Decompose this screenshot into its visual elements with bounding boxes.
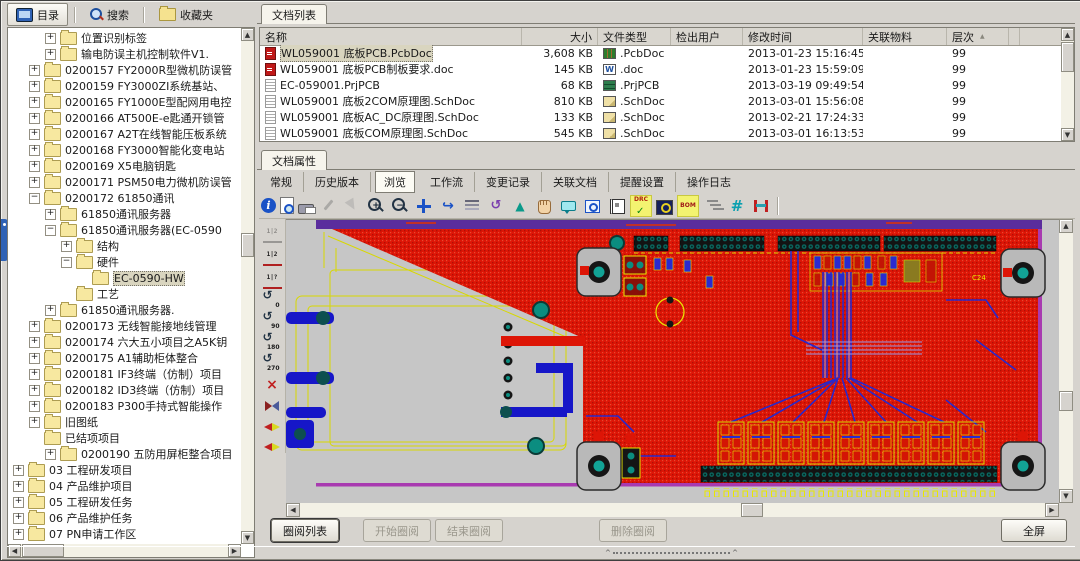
collapse-icon[interactable]: − bbox=[45, 225, 56, 236]
pointer-icon[interactable] bbox=[342, 196, 362, 216]
scroll-down-icon[interactable]: ▼ bbox=[241, 531, 254, 544]
toolbar-button-favorites[interactable]: 收藏夹 bbox=[151, 4, 221, 25]
expand-icon[interactable]: + bbox=[29, 337, 40, 348]
doc-type: .SchDoc bbox=[620, 127, 665, 140]
document-table: 名称大小文件类型检出用户修改时间关联物料层次▲ WL059001 底板PCB.P… bbox=[259, 27, 1075, 142]
tree-item-label: 0200175 A1辅助柜体整合 bbox=[65, 350, 198, 366]
tree-item[interactable]: +06 产品维护任务 bbox=[9, 510, 240, 526]
viewer-vscroll-thumb[interactable] bbox=[1059, 391, 1073, 411]
schdoc-file-icon bbox=[603, 96, 616, 107]
splitter-handle[interactable]: ^ ^ bbox=[605, 549, 738, 556]
expand-icon[interactable]: + bbox=[45, 49, 56, 60]
doc-type: .doc bbox=[620, 63, 643, 76]
sort-ascending-icon: ▲ bbox=[980, 33, 985, 40]
tree-item[interactable]: +0200173 无线智能接地线管理 bbox=[9, 318, 240, 334]
tree-item[interactable]: +0200175 A1辅助柜体整合 bbox=[9, 350, 240, 366]
tree-item-label: 0200159 FY3000ZI系统基站、 bbox=[65, 78, 224, 94]
tree-item[interactable]: +0200159 FY3000ZI系统基站、 bbox=[9, 78, 240, 94]
splitter-dots bbox=[613, 552, 730, 554]
tree-item[interactable]: −硬件 bbox=[9, 254, 240, 270]
folder-icon bbox=[28, 480, 45, 493]
doc-type: .SchDoc bbox=[620, 111, 665, 124]
tree-item[interactable]: +0200181 IF3终端（仿制）项目 bbox=[9, 366, 240, 382]
tree-item-label: 03 工程研发项目 bbox=[49, 462, 133, 478]
doc-level-cell: 99 bbox=[947, 127, 1009, 140]
tree-item-label: 0200181 IF3终端（仿制）项目 bbox=[65, 366, 222, 382]
expand-icon[interactable]: + bbox=[29, 97, 40, 108]
tree-item-label: 61850通讯服务器(EC-0590 bbox=[81, 222, 222, 238]
tree-item-label: 07 PN申请工作区 bbox=[49, 526, 136, 542]
folder-icon bbox=[28, 496, 45, 509]
prjpcb-file-icon bbox=[603, 80, 616, 91]
board-top-edge bbox=[316, 220, 1042, 229]
toolbar-button-label: 搜索 bbox=[107, 7, 129, 23]
expand-icon[interactable]: + bbox=[29, 321, 40, 332]
expand-icon[interactable]: + bbox=[29, 177, 40, 188]
redline-icon[interactable] bbox=[486, 196, 506, 216]
folder-icon bbox=[28, 528, 45, 541]
doc-size-cell: 810 KB bbox=[522, 95, 598, 108]
subtab-工作流[interactable]: 工作流 bbox=[419, 172, 475, 192]
column-header-filler bbox=[1009, 28, 1020, 45]
doc-size-cell: 145 KB bbox=[522, 63, 598, 76]
tree-item-label: 工艺 bbox=[97, 286, 119, 302]
properties-subtabs: 常规历史版本浏览工作流变更记录关联文档提醒设置操作日志 bbox=[259, 171, 1075, 192]
expand-icon[interactable]: + bbox=[13, 497, 24, 508]
schdoc-file-icon bbox=[603, 128, 616, 139]
collapse-icon[interactable]: − bbox=[61, 257, 72, 268]
doc-type-cell: .SchDoc bbox=[598, 95, 671, 108]
mirror-h-icon[interactable] bbox=[263, 396, 282, 415]
print-preview-icon[interactable] bbox=[280, 197, 294, 214]
folder-icon bbox=[44, 64, 61, 77]
column-header-6[interactable]: 关联物料 bbox=[863, 28, 947, 45]
tree-item-label: 0200183 P300手持式智能操作 bbox=[65, 398, 222, 414]
expand-icon[interactable]: + bbox=[29, 113, 40, 124]
tree-item-label: 旧图纸 bbox=[65, 414, 98, 430]
expand-icon[interactable]: + bbox=[29, 65, 40, 76]
tree-vertical-scrollbar[interactable]: ▲ ▼ bbox=[241, 28, 254, 544]
tab-document-list-label: 文档列表 bbox=[272, 7, 316, 23]
bom-icon[interactable]: BOM bbox=[677, 195, 699, 217]
directory-icon bbox=[16, 8, 33, 22]
tree-item-label: 06 产品维护任务 bbox=[49, 510, 133, 526]
folder-icon bbox=[44, 128, 61, 141]
notebook-icon[interactable] bbox=[606, 196, 626, 216]
doc-lines-icon bbox=[265, 127, 276, 140]
tree-item-label: 04 产品维护项目 bbox=[49, 478, 133, 494]
folder-icon bbox=[44, 112, 61, 125]
viewer-toolbar: i+−DRCBOM# bbox=[259, 193, 1075, 219]
doc-type: .PcbDoc bbox=[620, 47, 664, 60]
red-doc-icon bbox=[265, 63, 276, 76]
expand-icon[interactable]: + bbox=[29, 369, 40, 380]
doc-size-cell: 133 KB bbox=[522, 111, 598, 124]
folder-icon bbox=[60, 448, 77, 461]
viewer-horizontal-scrollbar[interactable]: ◀ ▶ bbox=[286, 503, 1059, 517]
tree-item-label: 硬件 bbox=[97, 254, 119, 270]
doc-level-cell: 99 bbox=[947, 111, 1009, 124]
pan-icon[interactable] bbox=[414, 196, 434, 216]
drc-icon[interactable]: DRC bbox=[630, 195, 652, 217]
subtab-常规[interactable]: 常规 bbox=[259, 172, 304, 192]
tree-item[interactable]: 已结项项目 bbox=[9, 430, 240, 446]
tree-item-label: 05 工程研发任务 bbox=[49, 494, 133, 510]
doc-size-cell: 3,608 KB bbox=[522, 47, 598, 60]
component-label-c24: C24 bbox=[972, 274, 986, 282]
hand-icon[interactable] bbox=[534, 196, 554, 216]
mirror-left-icon[interactable] bbox=[263, 417, 282, 436]
tree-item-label: 输电防误主机控制软件V1. bbox=[81, 46, 209, 62]
expand-icon[interactable]: + bbox=[29, 417, 40, 428]
doc-lines-icon bbox=[265, 79, 276, 92]
doc-modified-cell: 2013-01-23 15:16:45 bbox=[743, 47, 863, 60]
subtab-关联文档[interactable]: 关联文档 bbox=[542, 172, 609, 192]
project-tree-panel: +位置识别标签+输电防误主机控制软件V1.+0200157 FY2000R型微机… bbox=[7, 27, 255, 558]
pcb-viewer-canvas[interactable]: C24 bbox=[286, 219, 1059, 504]
folder-icon bbox=[60, 48, 77, 61]
folder-icon bbox=[28, 464, 45, 477]
doc-name: WL059001 底板2COM原理图.SchDoc bbox=[280, 93, 475, 109]
doc-type-cell: .PcbDoc bbox=[598, 47, 671, 60]
doc-modified-cell: 2013-02-21 17:24:33 bbox=[743, 111, 863, 124]
measure-icon[interactable] bbox=[751, 196, 771, 216]
table-vscroll-thumb[interactable] bbox=[1061, 42, 1074, 72]
expand-icon[interactable]: + bbox=[13, 465, 24, 476]
toolbar-button-directory[interactable]: 目录 bbox=[7, 3, 68, 26]
doc-name: WL059001 底板PCB.PcbDoc bbox=[280, 45, 433, 62]
board-view-icon[interactable] bbox=[656, 200, 673, 215]
zoom-in-icon[interactable]: + bbox=[366, 196, 386, 216]
rotate-270-icon[interactable]: 270 bbox=[263, 354, 282, 373]
tree-item[interactable]: EC-0590-HW bbox=[9, 270, 240, 286]
expand-icon[interactable]: + bbox=[13, 529, 24, 540]
folder-icon bbox=[44, 384, 61, 397]
tree-item[interactable]: +0200171 PSM50电力微机防误管 bbox=[9, 174, 240, 190]
tree-item-label: EC-0590-HW bbox=[113, 271, 185, 286]
doc-level-cell: 99 bbox=[947, 47, 1009, 60]
zoom-out-icon[interactable]: − bbox=[390, 196, 410, 216]
tree-item[interactable]: +输电防误主机控制软件V1. bbox=[9, 46, 240, 62]
tree-item[interactable]: 工艺 bbox=[9, 286, 240, 302]
tree-item-label: 0200169 X5电脑钥匙 bbox=[65, 158, 176, 174]
expand-icon[interactable]: + bbox=[13, 481, 24, 492]
doc-name-cell: WL059001 底板COM原理图.SchDoc bbox=[260, 125, 522, 141]
doc-type: .SchDoc bbox=[620, 95, 665, 108]
expand-icon[interactable]: + bbox=[45, 209, 56, 220]
doc-lines-icon bbox=[265, 95, 276, 108]
tree-item[interactable]: +03 工程研发项目 bbox=[9, 462, 240, 478]
expand-icon[interactable]: + bbox=[29, 401, 40, 412]
folder-icon bbox=[76, 256, 93, 269]
toolbar-button-label: 收藏夹 bbox=[180, 7, 213, 23]
table-row[interactable]: EC-059001.PrjPCB68 KB.PrjPCB2013-03-19 0… bbox=[260, 77, 1061, 93]
table-row[interactable]: WL059001 底板PCB制板要求.doc145 KBW.doc2013-01… bbox=[260, 61, 1061, 77]
doc-modified-cell: 2013-03-19 09:49:54 bbox=[743, 79, 863, 92]
scroll-down-icon[interactable]: ▼ bbox=[1059, 489, 1073, 503]
doc-type-cell: .PrjPCB bbox=[598, 79, 671, 92]
tree-item[interactable]: +位置识别标签 bbox=[9, 30, 240, 46]
bottom-pin-header bbox=[701, 466, 997, 482]
search-icon bbox=[90, 8, 103, 21]
tree-item[interactable]: +旧图纸 bbox=[9, 414, 240, 430]
expand-icon[interactable]: + bbox=[45, 33, 56, 44]
rotate-180-icon[interactable]: 180 bbox=[263, 333, 282, 352]
doc-type-cell: W.doc bbox=[598, 63, 671, 76]
top-pin-headers bbox=[634, 236, 996, 253]
doc-type-cell: .SchDoc bbox=[598, 127, 671, 140]
doc-level-cell: 99 bbox=[947, 79, 1009, 92]
tree-item-label: 0200167 A2T在线智能压板系统 bbox=[65, 126, 227, 142]
application-window: 目录搜索收藏夹 +位置识别标签+输电防误主机控制软件V1.+0200157 FY… bbox=[0, 0, 1080, 561]
tree-item[interactable]: +61850通讯服务器 bbox=[9, 206, 240, 222]
table-row[interactable]: WL059001 底板COM原理图.SchDoc545 KB.SchDoc201… bbox=[260, 125, 1061, 141]
tree-item[interactable]: +0200182 ID3终端（仿制）项目 bbox=[9, 382, 240, 398]
doc-size-cell: 545 KB bbox=[522, 127, 598, 140]
document-table-header[interactable]: 名称大小文件类型检出用户修改时间关联物料层次▲ bbox=[260, 28, 1061, 46]
tree-item[interactable]: −0200172 61850通讯 bbox=[9, 190, 240, 206]
folder-icon bbox=[60, 208, 77, 221]
doc-level-cell: 99 bbox=[947, 63, 1009, 76]
rotate-90-icon[interactable]: 90 bbox=[263, 312, 282, 331]
compare-none-icon[interactable]: 1|2 bbox=[263, 222, 282, 243]
review-list-button[interactable]: 圈阅列表 bbox=[271, 519, 339, 542]
doc-name-cell: WL059001 底板2COM原理图.SchDoc bbox=[260, 93, 522, 109]
scroll-up-icon[interactable]: ▲ bbox=[1059, 219, 1073, 233]
scroll-up-icon[interactable]: ▲ bbox=[1061, 28, 1074, 41]
viewer-vertical-scrollbar[interactable]: ▲ ▼ bbox=[1059, 219, 1073, 503]
folder-icon bbox=[44, 320, 61, 333]
subtab-提醒设置[interactable]: 提醒设置 bbox=[609, 172, 676, 192]
doc-lines-icon bbox=[265, 111, 276, 124]
collapse-up-icon: ^ bbox=[732, 549, 738, 557]
tree-item[interactable]: +0200169 X5电脑钥匙 bbox=[9, 158, 240, 174]
folder-icon bbox=[44, 336, 61, 349]
scroll-right-icon[interactable]: ▶ bbox=[1045, 503, 1059, 517]
arrow-up-icon[interactable] bbox=[510, 196, 530, 216]
doc-name: WL059001 底板COM原理图.SchDoc bbox=[280, 125, 468, 141]
tree-item-label: 0200166 AT500E-e匙通开锁管 bbox=[65, 110, 225, 126]
doc-level-cell: 99 bbox=[947, 95, 1009, 108]
tree-item-label: 已结项项目 bbox=[65, 430, 120, 446]
subtab-浏览[interactable]: 浏览 bbox=[375, 171, 415, 193]
expand-icon[interactable]: + bbox=[29, 145, 40, 156]
folder-icon bbox=[44, 80, 61, 93]
expand-icon[interactable]: + bbox=[61, 241, 72, 252]
doc-type: .PrjPCB bbox=[620, 79, 659, 92]
tree-vscroll-thumb[interactable] bbox=[241, 233, 254, 257]
column-header-7[interactable]: 层次▲ bbox=[947, 28, 1009, 45]
doc-modified-cell: 2013-01-23 15:59:09 bbox=[743, 63, 863, 76]
rotate-0-icon[interactable]: 0 bbox=[263, 291, 282, 310]
bottom-silk-labels bbox=[704, 488, 996, 497]
toolbar-button-label: 目录 bbox=[37, 7, 59, 23]
folder-icon bbox=[60, 224, 77, 237]
compare-1q-icon[interactable]: 1|? bbox=[263, 268, 282, 289]
tree-item-label: 0200168 FY3000智能化变电站 bbox=[65, 142, 225, 158]
favorites-icon bbox=[159, 8, 176, 21]
tree-item-label: 61850通讯服务器 bbox=[81, 206, 171, 222]
expand-icon[interactable]: + bbox=[29, 129, 40, 140]
rotate-icon[interactable] bbox=[438, 196, 458, 216]
toolbar-separator bbox=[143, 7, 145, 23]
folder-icon bbox=[92, 272, 109, 285]
collapse-icon[interactable]: − bbox=[29, 193, 40, 204]
toolbar-separator bbox=[777, 197, 779, 215]
tree-item[interactable]: +04 产品维护项目 bbox=[9, 478, 240, 494]
expand-icon[interactable]: + bbox=[45, 305, 56, 316]
table-row[interactable]: WL059001 底板PCB.PcbDoc3,608 KB.PcbDoc2013… bbox=[260, 45, 1061, 61]
document-table-body[interactable]: WL059001 底板PCB.PcbDoc3,608 KB.PcbDoc2013… bbox=[260, 45, 1061, 141]
folder-icon bbox=[44, 144, 61, 157]
scroll-down-icon[interactable]: ▼ bbox=[1061, 128, 1074, 141]
tree-item[interactable]: +0200190 五防用屏柜整合项目 bbox=[9, 446, 240, 462]
doc-name: EC-059001.PrjPCB bbox=[280, 79, 380, 92]
grid-icon[interactable]: # bbox=[727, 196, 747, 216]
mirror-off-icon[interactable]: × bbox=[263, 375, 282, 394]
table-vertical-scrollbar[interactable]: ▲ ▼ bbox=[1061, 28, 1074, 141]
column-header-5[interactable]: 修改时间 bbox=[743, 28, 863, 45]
tree-item[interactable]: +05 工程研发任务 bbox=[9, 494, 240, 510]
subtab-历史版本[interactable]: 历史版本 bbox=[304, 172, 371, 192]
edit-icon[interactable] bbox=[318, 196, 338, 216]
end-review-button[interactable]: 结束圈阅 bbox=[435, 519, 503, 542]
info-icon[interactable]: i bbox=[261, 198, 276, 213]
folder-icon bbox=[44, 176, 61, 189]
doc-size-cell: 68 KB bbox=[522, 79, 598, 92]
folder-icon bbox=[44, 352, 61, 365]
tree-item[interactable]: −61850通讯服务器(EC-0590 bbox=[9, 222, 240, 238]
tree-item[interactable]: +0200168 FY3000智能化变电站 bbox=[9, 142, 240, 158]
tree-item-label: 0200172 61850通讯 bbox=[65, 190, 174, 206]
folder-icon bbox=[76, 240, 93, 253]
tree-item-label: 0200173 无线智能接地线管理 bbox=[65, 318, 217, 334]
folder-icon bbox=[44, 368, 61, 381]
tree-item[interactable]: +61850通讯服务器. bbox=[9, 302, 240, 318]
toolbar-button-search[interactable]: 搜索 bbox=[82, 4, 137, 25]
scroll-left-icon[interactable]: ◀ bbox=[286, 503, 300, 517]
pcb-drawing: C24 bbox=[286, 220, 1059, 504]
doc-name-cell: WL059001 底板PCB.PcbDoc bbox=[260, 45, 522, 62]
tree-item-label: 0200174 六大五小项目之A5K钥 bbox=[65, 334, 227, 350]
doc-name-cell: WL059001 底板AC_DC原理图.SchDoc bbox=[260, 109, 522, 125]
layer-tree-icon[interactable] bbox=[703, 196, 723, 216]
doc-name-cell: EC-059001.PrjPCB bbox=[260, 79, 522, 92]
tree-item[interactable]: +07 PN申请工作区 bbox=[9, 526, 240, 542]
start-review-button[interactable]: 开始圈阅 bbox=[363, 519, 431, 542]
expand-icon[interactable]: + bbox=[45, 449, 56, 460]
viewer-hscroll-thumb[interactable] bbox=[741, 503, 763, 517]
tree-item[interactable]: +结构 bbox=[9, 238, 240, 254]
tree-item[interactable]: +0200157 FY2000R型微机防误管 bbox=[9, 62, 240, 78]
folder-icon bbox=[44, 432, 61, 445]
tree-item-label: 结构 bbox=[97, 238, 119, 254]
toolbar-separator bbox=[74, 7, 76, 23]
tab-document-list[interactable]: 文档列表 bbox=[261, 4, 327, 24]
zoom-window-icon[interactable] bbox=[582, 196, 602, 216]
bottom-splitter: ^ ^ bbox=[7, 546, 1075, 557]
doc-modified-cell: 2013-03-01 15:56:08 bbox=[743, 95, 863, 108]
expand-icon[interactable]: + bbox=[29, 353, 40, 364]
tree-item[interactable]: +0200165 FY1000E型配网用电控 bbox=[9, 94, 240, 110]
red-trace bbox=[501, 336, 585, 346]
compare-12-icon[interactable]: 1|2 bbox=[263, 245, 282, 266]
tree-item[interactable]: +0200166 AT500E-e匙通开锁管 bbox=[9, 110, 240, 126]
folder-icon bbox=[44, 160, 61, 173]
folder-icon bbox=[60, 32, 77, 45]
tree-item[interactable]: +0200183 P300手持式智能操作 bbox=[9, 398, 240, 414]
red-doc-icon bbox=[265, 47, 276, 60]
navigation-toolbar: 目录搜索收藏夹 bbox=[7, 3, 253, 26]
doc-name: WL059001 底板PCB制板要求.doc bbox=[280, 61, 454, 77]
doc-name-cell: WL059001 底板PCB制板要求.doc bbox=[260, 61, 522, 77]
tree-item-label: 0200171 PSM50电力微机防误管 bbox=[65, 174, 232, 190]
doc-type-cell: .SchDoc bbox=[598, 111, 671, 124]
table-row[interactable]: WL059001 底板AC_DC原理图.SchDoc133 KB.SchDoc2… bbox=[260, 109, 1061, 125]
board-bottom-edge bbox=[316, 483, 1042, 487]
collapse-up-icon: ^ bbox=[605, 549, 611, 557]
column-header-2[interactable]: 大小 bbox=[522, 28, 598, 45]
folder-icon bbox=[44, 400, 61, 413]
scroll-up-icon[interactable]: ▲ bbox=[241, 28, 254, 41]
folder-icon bbox=[44, 192, 61, 205]
doc-list-tabline bbox=[257, 23, 1075, 24]
viewer-side-toolbar: 1|21|21|?090180270× bbox=[259, 219, 286, 453]
expand-icon[interactable]: + bbox=[13, 513, 24, 524]
layers-icon[interactable] bbox=[462, 196, 482, 216]
tab-document-properties[interactable]: 文档属性 bbox=[261, 150, 327, 170]
tree-item-label: 0200182 ID3终端（仿制）项目 bbox=[65, 382, 224, 398]
expand-icon[interactable]: + bbox=[29, 81, 40, 92]
mirror-right-icon[interactable] bbox=[263, 438, 282, 457]
column-header-1[interactable]: 名称 bbox=[260, 28, 522, 45]
expand-icon[interactable]: + bbox=[29, 385, 40, 396]
subtab-变更记录[interactable]: 变更记录 bbox=[475, 172, 542, 192]
folder-icon bbox=[44, 96, 61, 109]
tree-item-label: 位置识别标签 bbox=[81, 30, 147, 46]
comment-icon[interactable] bbox=[558, 196, 578, 216]
print-icon[interactable] bbox=[298, 204, 314, 214]
subtab-操作日志[interactable]: 操作日志 bbox=[676, 172, 742, 192]
expand-icon[interactable]: + bbox=[29, 161, 40, 172]
tree-item[interactable]: +0200167 A2T在线智能压板系统 bbox=[9, 126, 240, 142]
fullscreen-button[interactable]: 全屏 bbox=[1001, 519, 1067, 542]
tree-item-label: 0200157 FY2000R型微机防误管 bbox=[65, 62, 232, 78]
folder-icon bbox=[28, 512, 45, 525]
tree-item-label: 0200165 FY1000E型配网用电控 bbox=[65, 94, 231, 110]
project-tree[interactable]: +位置识别标签+输电防误主机控制软件V1.+0200157 FY2000R型微机… bbox=[9, 30, 240, 543]
doc-modified-cell: 2013-03-01 16:13:53 bbox=[743, 127, 863, 140]
pcbdoc-file-icon bbox=[603, 48, 616, 59]
tree-item-label: 61850通讯服务器. bbox=[81, 302, 175, 318]
folder-icon bbox=[44, 416, 61, 429]
column-header-3[interactable]: 文件类型 bbox=[598, 28, 671, 45]
tab-document-properties-label: 文档属性 bbox=[272, 153, 316, 169]
delete-review-button[interactable]: 删除圈阅 bbox=[599, 519, 667, 542]
tree-item-label: 0200190 五防用屏柜整合项目 bbox=[81, 446, 233, 462]
word-file-icon: W bbox=[603, 64, 616, 75]
column-header-4[interactable]: 检出用户 bbox=[671, 28, 743, 45]
schdoc-file-icon bbox=[603, 112, 616, 123]
doc-name: WL059001 底板AC_DC原理图.SchDoc bbox=[280, 109, 479, 125]
tree-item[interactable]: +0200174 六大五小项目之A5K钥 bbox=[9, 334, 240, 350]
folder-icon bbox=[60, 304, 77, 317]
folder-icon bbox=[76, 288, 93, 301]
table-row[interactable]: WL059001 底板2COM原理图.SchDoc810 KB.SchDoc20… bbox=[260, 93, 1061, 109]
